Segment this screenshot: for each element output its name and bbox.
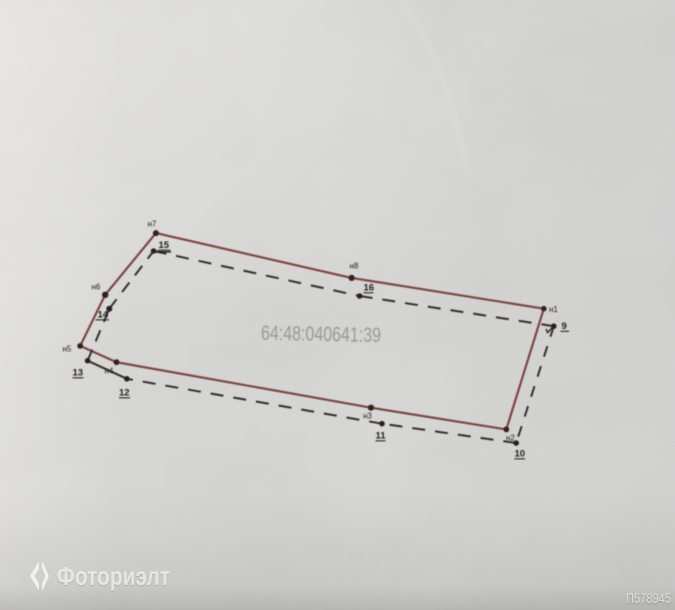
svg-text:64:48:040641:39: 64:48:040641:39 (261, 321, 381, 347)
svg-text:16: 16 (364, 283, 375, 294)
svg-text:11: 11 (376, 431, 387, 442)
svg-text:н6: н6 (92, 283, 101, 292)
svg-text:н8: н8 (350, 262, 359, 271)
svg-text:Фоториэлт: Фоториэлт (57, 561, 170, 591)
svg-text:н2: н2 (506, 434, 515, 443)
svg-text:П578945: П578945 (626, 590, 671, 606)
svg-text:13: 13 (73, 368, 84, 379)
svg-text:10: 10 (515, 449, 526, 460)
svg-text:9: 9 (562, 321, 567, 332)
svg-text:15: 15 (159, 240, 170, 251)
svg-text:н3: н3 (363, 412, 372, 421)
svg-text:н5: н5 (63, 345, 72, 354)
svg-text:14: 14 (98, 310, 109, 321)
svg-text:н1: н1 (549, 305, 558, 314)
svg-text:12: 12 (119, 388, 130, 399)
svg-text:н4: н4 (105, 367, 114, 376)
svg-text:н7: н7 (148, 220, 157, 229)
